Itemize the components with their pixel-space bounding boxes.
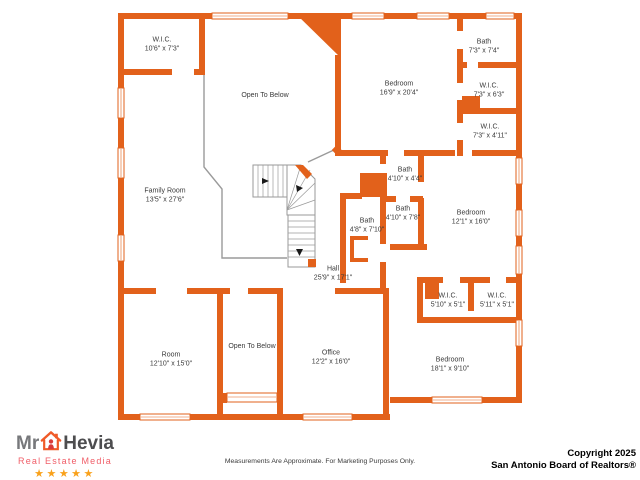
copyright-line2: San Antonio Board of Realtors® xyxy=(491,460,636,472)
logo: Mr Hevia Real Estate Media ★★★★★ xyxy=(10,431,120,480)
house-with-person-icon xyxy=(40,431,62,456)
floorplan-page: W.I.C.10'6" x 7'3"Open To BelowBedroom16… xyxy=(0,0,640,480)
chase-block xyxy=(360,173,387,197)
staircase xyxy=(253,165,316,267)
wic-block xyxy=(425,277,439,299)
copyright-line1: Copyright 2025 xyxy=(491,448,636,460)
copyright-text: Copyright 2025 San Antonio Board of Real… xyxy=(491,448,636,471)
five-star-rating: ★★★★★ xyxy=(10,467,120,480)
logo-wordmark: Mr Hevia xyxy=(10,431,120,456)
logo-name: Hevia xyxy=(63,434,114,454)
floorplan-drawing xyxy=(0,0,640,480)
angled-corner-wall xyxy=(295,13,341,58)
logo-prefix: Mr xyxy=(16,434,39,454)
interior-walls xyxy=(118,13,522,420)
